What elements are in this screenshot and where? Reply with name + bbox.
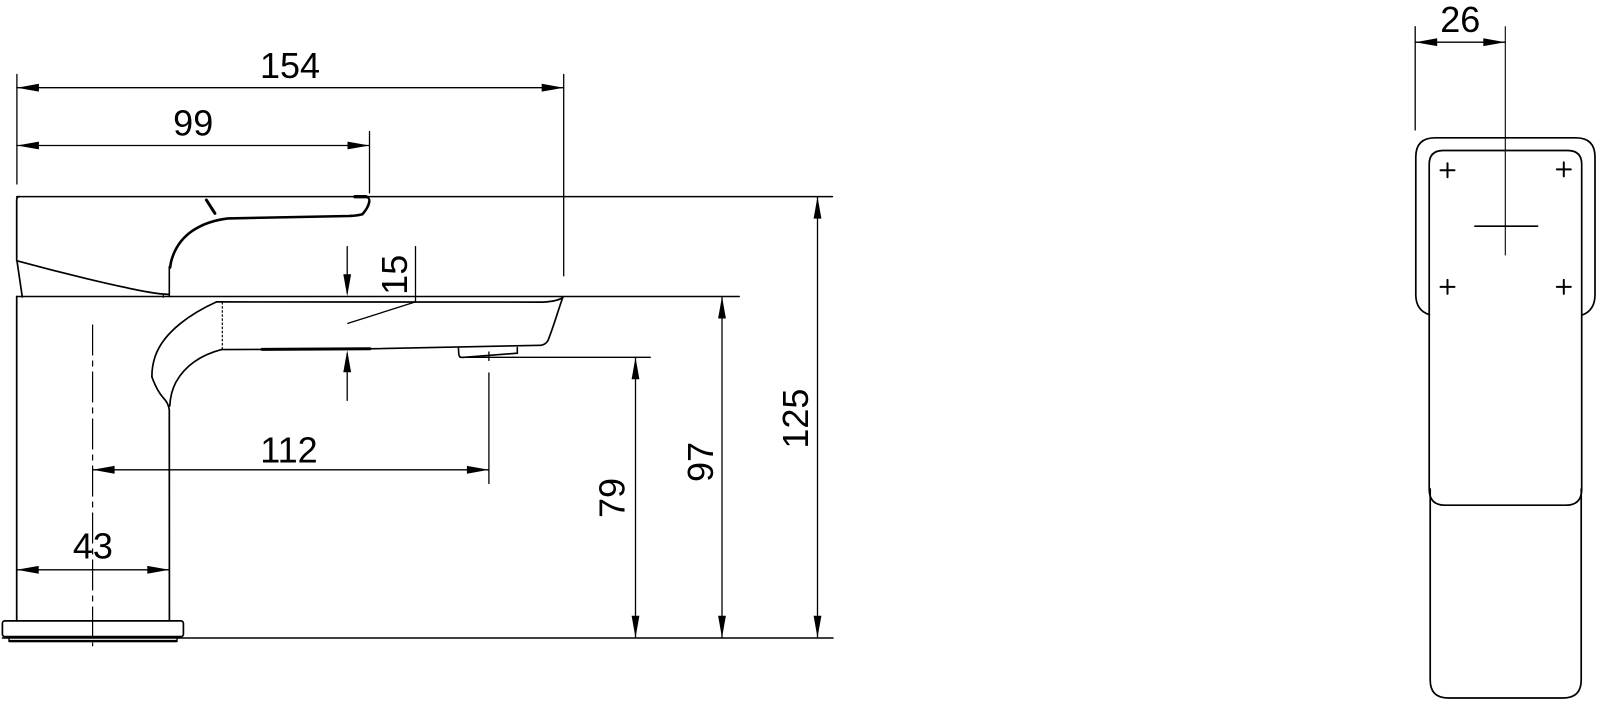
svg-text:26: 26 — [1440, 0, 1480, 40]
svg-text:154: 154 — [260, 45, 320, 86]
svg-text:112: 112 — [260, 430, 317, 471]
svg-text:79: 79 — [592, 478, 633, 518]
svg-text:15: 15 — [374, 255, 415, 295]
svg-text:43: 43 — [73, 526, 113, 567]
svg-text:97: 97 — [680, 442, 721, 482]
svg-text:125: 125 — [775, 389, 816, 449]
svg-text:99: 99 — [173, 103, 213, 144]
